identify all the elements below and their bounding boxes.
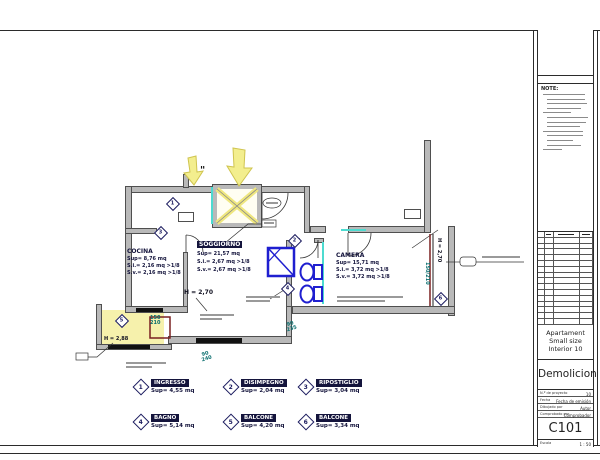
- field-value: Autor: [580, 406, 591, 411]
- wall-stub-top: [183, 174, 189, 188]
- strip-box: [538, 76, 593, 84]
- wall-top-left: [125, 186, 213, 193]
- note-line: [547, 108, 581, 109]
- field-value: Fecha de emisión: [556, 399, 591, 404]
- legend-label-5: BALCONE: [241, 414, 276, 422]
- micro-note: [126, 366, 152, 368]
- note-line: [543, 149, 562, 150]
- note-line: [547, 140, 573, 141]
- scale-value: 1 : 50: [579, 442, 591, 447]
- field-row: Fecha Fecha de emisión: [538, 397, 593, 404]
- field-row: Dibujado por Autor: [538, 404, 593, 411]
- note-line: [547, 145, 581, 146]
- room-sv: S.v.= 3,72 mq >1/8: [336, 274, 390, 280]
- wall-camera-bottom: [292, 306, 455, 314]
- sheet-number: C101: [538, 418, 593, 440]
- window-band-balcony: [108, 345, 150, 349]
- wall-top-mid: [260, 186, 310, 193]
- legend-sup-4: Sup= 5,14 mq: [151, 423, 195, 429]
- legend-badge-3: 3: [298, 379, 315, 396]
- field-label: Fecha: [540, 398, 550, 402]
- note-line: [547, 126, 580, 127]
- frame-right-line: [597, 30, 598, 446]
- room-sv: S.v.= 2,16 mq >1/8: [127, 270, 181, 276]
- column-box-left: [178, 212, 194, 222]
- dim-tag-2: 90240: [200, 351, 213, 364]
- plan-linework: [0, 0, 600, 460]
- height-label-left: H = 2,88: [104, 336, 128, 342]
- room-badge-6: 6: [434, 292, 448, 306]
- page-bottom-edge: [0, 453, 600, 454]
- tick-mark: ": [200, 165, 205, 176]
- height-label-center: H = 2,70: [184, 289, 213, 296]
- room-si: S.i.= 3,72 mq >1/8: [336, 267, 389, 273]
- drawing-sheet: COCINA Sup= 8,76 mq S.i.= 2,16 mq >1/8 S…: [0, 0, 600, 460]
- frame-bottom-line: [0, 445, 600, 446]
- dim-tag-3: 90235: [285, 321, 298, 334]
- project-name-line: Interior 10: [538, 345, 593, 353]
- revision-cell: [538, 319, 545, 325]
- window-band-soggiorno: [196, 338, 242, 343]
- field-row: N.º de proyecto 10: [538, 390, 593, 397]
- project-name-line: Apartament: [538, 329, 593, 337]
- legend-label-1: INGRESSO: [151, 379, 189, 387]
- room-badge-1: 1: [166, 197, 180, 211]
- revision-table: [538, 232, 593, 325]
- revision-cell: [580, 319, 593, 325]
- room-name: COCINA: [127, 248, 153, 255]
- room-sup: Sup= 15,71 mq: [336, 260, 379, 266]
- wall-bath-left: [286, 240, 292, 310]
- micro-note: [266, 202, 278, 204]
- wall-corridor: [125, 228, 157, 234]
- room-si: S.i.= 2,16 mq >1/8: [127, 263, 180, 269]
- micro-note: [337, 300, 385, 302]
- field-value: Comprobador: [564, 413, 591, 418]
- room-sv: S.v.= 2,67 mq >1/8: [197, 267, 251, 273]
- legend-label-3: RIPOSTIGLIO: [316, 379, 362, 387]
- legend-badge-5: 5: [223, 414, 240, 431]
- legend-sup-3: Sup= 3,04 mq: [316, 388, 360, 394]
- field-row: Comprobado por Comprobador: [538, 411, 593, 418]
- wall-bath-top-b: [314, 238, 324, 243]
- room-sup: Sup= 8,76 mq: [127, 256, 167, 262]
- micro-note: [264, 222, 274, 224]
- dim-tag-4: 150/210: [424, 262, 429, 285]
- legend-badge-2: 2: [223, 379, 240, 396]
- micro-note: [200, 314, 234, 316]
- notes-title: NOTE:: [541, 86, 558, 92]
- room-badge-4: 4: [281, 282, 295, 296]
- note-line: [547, 135, 583, 136]
- logo-box: [538, 30, 593, 76]
- project-name-line: Small size: [538, 337, 593, 345]
- field-value: 10: [586, 392, 591, 397]
- room-name: CAMERA: [336, 252, 364, 259]
- toilet-icon: [301, 264, 323, 281]
- column-box-right: [404, 209, 421, 219]
- wall-mid-left-piece: [310, 226, 326, 233]
- legend-sup-6: Sup= 3,34 mq: [316, 423, 360, 429]
- legend-label-4: BAGNO: [151, 414, 179, 422]
- legend-sup-2: Sup= 2,04 mq: [241, 388, 285, 394]
- note-line: [543, 131, 583, 132]
- dim-tag-1: 150210: [150, 316, 160, 326]
- revision-cell: [554, 319, 580, 325]
- wall-right-exterior: [448, 226, 455, 316]
- field-label: N.º de proyecto: [540, 391, 567, 395]
- project-name: Apartament Small size Interior 10: [538, 325, 593, 360]
- legend-badge-4: 4: [133, 414, 150, 431]
- room-name: SOGGIORNO: [197, 241, 242, 248]
- window-band-cocina: [136, 308, 163, 312]
- sheet-name: Demolicion: [538, 360, 593, 390]
- notes-box: NOTE:: [538, 84, 593, 232]
- note-line: [547, 122, 586, 123]
- legend-badge-6: 6: [298, 414, 315, 431]
- bidet-icon: [301, 286, 323, 303]
- demolition-arrow-icons: [184, 148, 252, 186]
- wall-cocina-divider: [183, 252, 188, 308]
- legend-sup-5: Sup= 4,20 mq: [241, 423, 285, 429]
- fields-box: N.º de proyecto 10 Fecha Fecha de emisió…: [538, 390, 593, 418]
- revision-cell: [545, 319, 554, 325]
- legend-label-2: DISIMPEGNO: [241, 379, 287, 387]
- wall-mid-right-piece: [348, 226, 430, 233]
- legend-label-6: BALCONE: [316, 414, 351, 422]
- scale-label: Escala: [540, 441, 551, 445]
- legend-sup-1: Sup= 4,55 mq: [151, 388, 195, 394]
- room-si: S.i.= 2,67 mq >1/8: [197, 259, 250, 265]
- room-sup: Sup= 21,57 mq: [197, 251, 240, 257]
- micro-note: [200, 318, 222, 320]
- frame-top-line: [0, 30, 600, 31]
- field-label: Dibujado por: [540, 405, 563, 409]
- note-line: [547, 117, 588, 118]
- shaft-interior: [217, 189, 257, 223]
- micro-note: [126, 362, 166, 364]
- height-label-right: H = 2,70: [436, 238, 442, 262]
- wall-right-tall: [424, 140, 431, 233]
- micro-note: [246, 296, 280, 298]
- note-line: [543, 112, 571, 113]
- frame-title-divider: [533, 30, 534, 446]
- micro-note: [337, 296, 403, 298]
- title-block: NOTE: Apartament Small size Interior 10 …: [537, 30, 594, 447]
- shaft-walls: [212, 184, 262, 228]
- note-line: [547, 99, 585, 100]
- micro-note: [482, 256, 520, 258]
- note-line: [547, 103, 587, 104]
- note-line: [543, 94, 585, 95]
- scale-row: Escala 1 : 50: [538, 440, 593, 447]
- micro-note: [246, 300, 270, 302]
- legend-badge-1: 1: [133, 379, 150, 396]
